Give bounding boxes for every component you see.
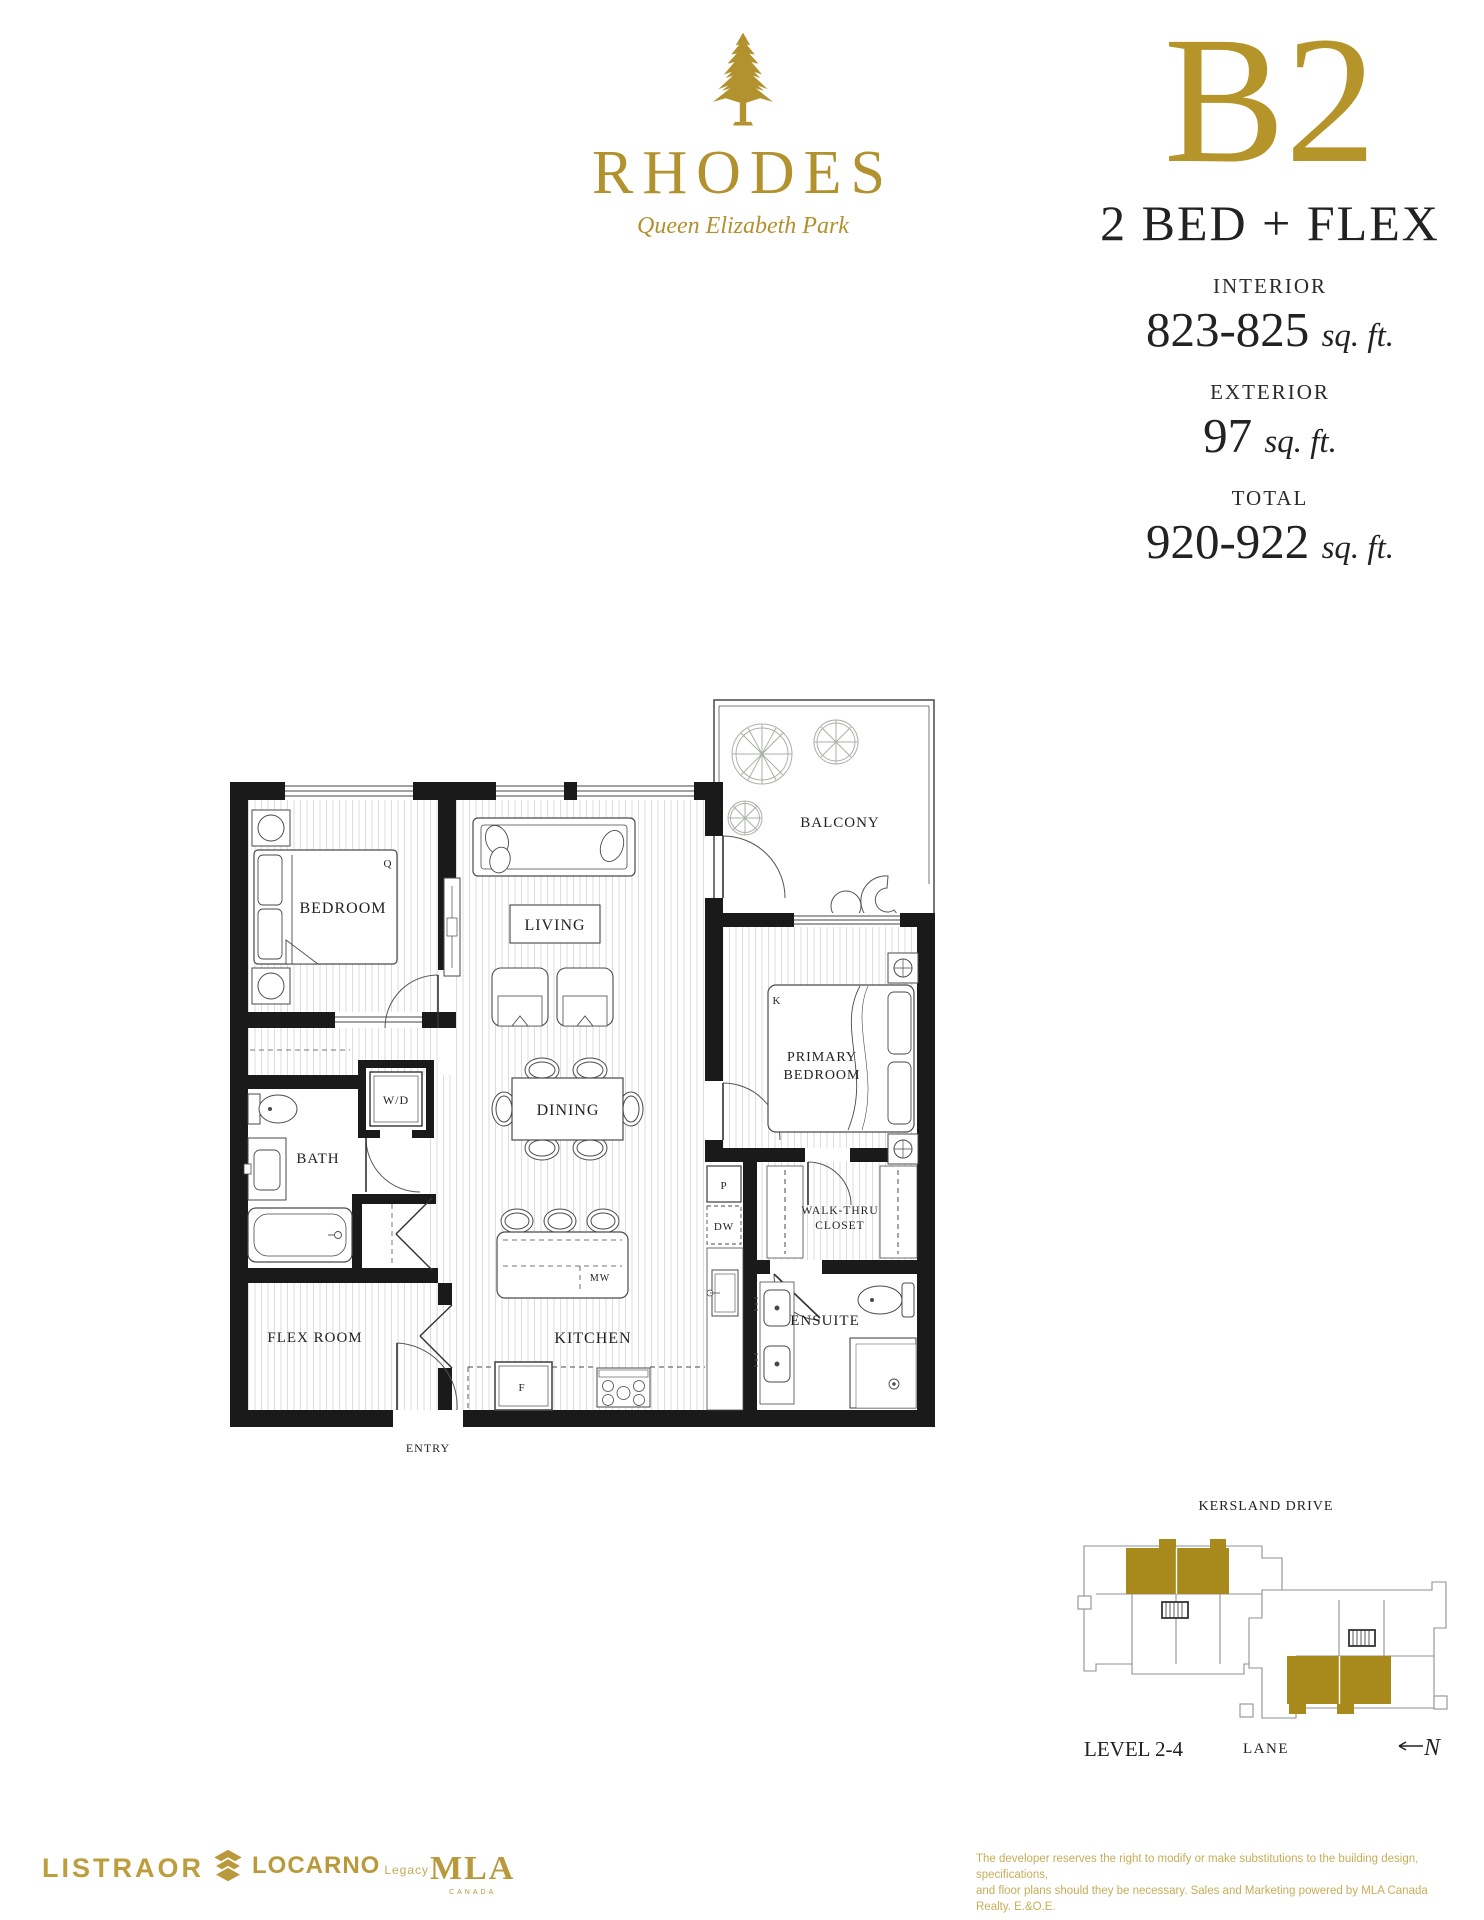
microwave-tag: MW <box>590 1273 610 1284</box>
level-label: LEVEL 2-4 <box>1084 1737 1183 1761</box>
site-plan: KERSLAND DRIVE LEVEL 2-4 <box>1044 1478 1464 1798</box>
brand-block: RHODES Queen Elizabeth Park <box>460 28 1026 240</box>
stat-exterior-value: 97 sq. ft. <box>1060 407 1480 464</box>
brand-name: RHODES <box>460 138 1026 209</box>
primary-bedroom-label-1: PRIMARY <box>787 1050 857 1065</box>
stat-total-value: 920-922 sq. ft. <box>1060 513 1480 570</box>
plan-code: B2 <box>1060 10 1480 192</box>
brochure-page: { "brand": { "name": "RHODES", "tagline"… <box>0 0 1484 1920</box>
locarno-layers-icon <box>212 1848 244 1884</box>
plan-type: 2 BED + FLEX <box>1060 194 1480 252</box>
ensuite-label: ENSUITE <box>790 1313 860 1329</box>
floor-plan: BALCONY <box>200 670 960 1505</box>
stat-interior: INTERIOR 823-825 sq. ft. <box>1060 274 1480 358</box>
stat-exterior-label: EXTERIOR <box>1060 380 1480 405</box>
lane-label: LANE <box>1243 1741 1289 1757</box>
kitchen-label: KITCHEN <box>554 1330 631 1347</box>
ensuite-fixtures <box>754 1282 916 1408</box>
stat-total: TOTAL 920-922 sq. ft. <box>1060 486 1480 570</box>
fridge-tag: F <box>518 1382 525 1394</box>
stair-icon-south <box>1349 1630 1375 1646</box>
stat-interior-unit: sq. ft. <box>1322 318 1394 354</box>
washer-dryer-tag: W/D <box>383 1093 409 1107</box>
site-plan-drawing: KERSLAND DRIVE LEVEL 2-4 <box>1044 1478 1464 1793</box>
entry-opening <box>393 1410 463 1427</box>
locarno-wordmark: LOCARNO <box>252 1852 380 1880</box>
stat-exterior-number: 97 <box>1203 408 1252 463</box>
listraor-logo: LISTRAOR <box>42 1853 204 1884</box>
stat-interior-number: 823-825 <box>1146 302 1309 357</box>
balcony-label: BALCONY <box>800 815 880 831</box>
disclaimer-line-2: and floor plans should they be necessary… <box>976 1883 1452 1915</box>
primary-bedroom-label-2: BEDROOM <box>783 1068 860 1083</box>
stat-total-unit: sq. ft. <box>1322 530 1394 566</box>
stat-total-label: TOTAL <box>1060 486 1480 511</box>
plan-id-block: B2 2 BED + FLEX INTERIOR 823-825 sq. ft.… <box>1060 10 1480 570</box>
stair-icon-north <box>1162 1602 1188 1618</box>
north-arrow-icon: N <box>1399 1735 1442 1761</box>
stat-exterior: EXTERIOR 97 sq. ft. <box>1060 380 1480 464</box>
dining-label: DINING <box>537 1102 600 1119</box>
flex-room-label: FLEX ROOM <box>267 1330 362 1346</box>
street-label: KERSLAND DRIVE <box>1199 1499 1334 1514</box>
disclaimer-text: The developer reserves the right to modi… <box>976 1851 1452 1915</box>
stat-interior-label: INTERIOR <box>1060 274 1480 299</box>
mla-logo: MLA CANADA <box>430 1850 515 1896</box>
balcony-zone <box>714 700 934 926</box>
dishwasher-tag: DW <box>714 1221 734 1233</box>
stat-interior-value: 823-825 sq. ft. <box>1060 301 1480 358</box>
stat-total-number: 920-922 <box>1146 514 1309 569</box>
walk-thru-closet-label-2: CLOSET <box>815 1220 864 1232</box>
locarno-suffix: Legacy <box>384 1863 429 1877</box>
queen-bed-tag: Q <box>384 858 393 870</box>
bedroom-label: BEDROOM <box>299 900 386 917</box>
brand-tagline: Queen Elizabeth Park <box>460 213 1026 240</box>
entry-label: ENTRY <box>406 1441 450 1455</box>
north-letter: N <box>1423 1735 1442 1761</box>
pine-tree-logo-icon <box>702 28 784 132</box>
stat-exterior-unit: sq. ft. <box>1264 424 1336 460</box>
mla-wordmark: MLA <box>430 1850 515 1888</box>
kitchen-column <box>707 1166 743 1410</box>
living-label: LIVING <box>524 917 585 934</box>
locarno-logo: LOCARNO Legacy <box>212 1848 429 1884</box>
mla-canada-label: CANADA <box>430 1889 515 1896</box>
bath-fixtures <box>244 1094 352 1262</box>
king-bed-tag: K <box>773 995 782 1007</box>
bath-label: BATH <box>296 1151 339 1167</box>
disclaimer-line-1: The developer reserves the right to modi… <box>976 1851 1452 1883</box>
floor-plan-drawing: BALCONY <box>200 670 960 1500</box>
pantry-tag: P <box>720 1180 727 1192</box>
walk-thru-closet-label-1: WALK-THRU <box>801 1205 878 1217</box>
